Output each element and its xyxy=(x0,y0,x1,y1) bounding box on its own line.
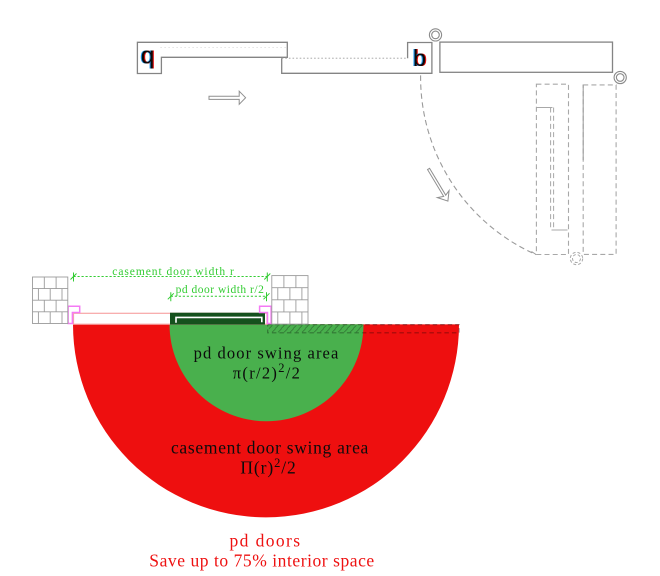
svg-text:casement door swing area: casement door swing area xyxy=(171,438,369,458)
svg-text:π(r/2)2/2: π(r/2)2/2 xyxy=(233,361,301,383)
svg-text:Π(r)2/2: Π(r)2/2 xyxy=(240,456,296,478)
svg-text:Save up to 75% interior space: Save up to 75% interior space xyxy=(149,551,374,571)
svg-text:casement door width r: casement door width r xyxy=(112,266,234,278)
svg-text:pd door width r/2: pd door width r/2 xyxy=(176,284,265,296)
svg-text:pd door swing area: pd door swing area xyxy=(194,344,340,363)
svg-text:b: b xyxy=(413,45,426,71)
svg-text:pd doors: pd doors xyxy=(230,531,302,551)
svg-text:q: q xyxy=(141,43,155,70)
